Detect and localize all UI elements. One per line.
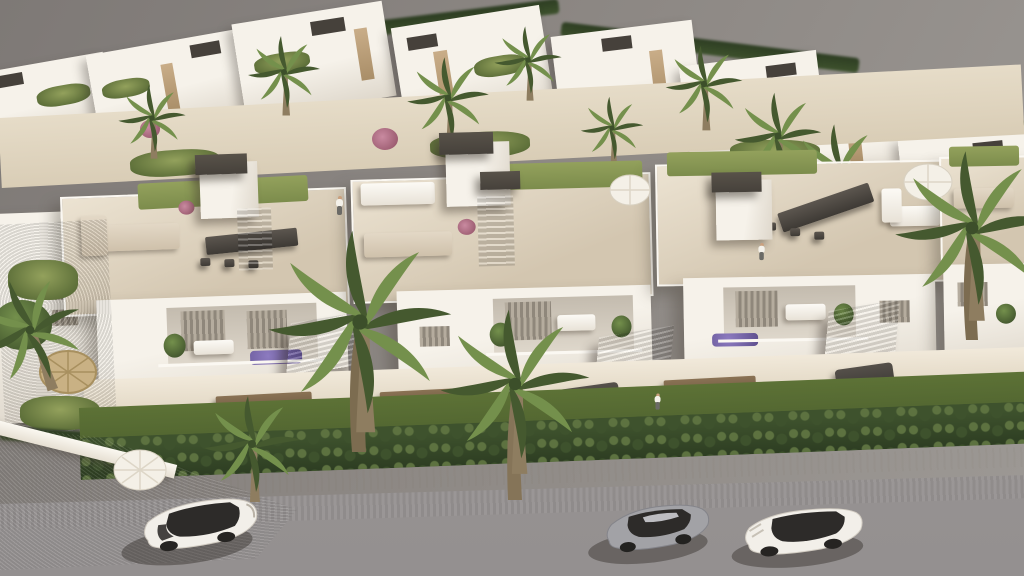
car-white-suv — [116, 495, 261, 572]
palm-tree — [204, 396, 300, 502]
car-silver-coupe — [584, 501, 712, 569]
white-parasol — [610, 175, 650, 205]
palm-tree — [895, 151, 1024, 340]
white-parasol — [114, 450, 166, 490]
architectural-render-scene — [0, 0, 1024, 576]
car-white-sedan — [728, 505, 865, 572]
palm-tree — [269, 231, 451, 452]
foreground-layer — [0, 0, 1024, 576]
palm-tree — [441, 310, 590, 500]
